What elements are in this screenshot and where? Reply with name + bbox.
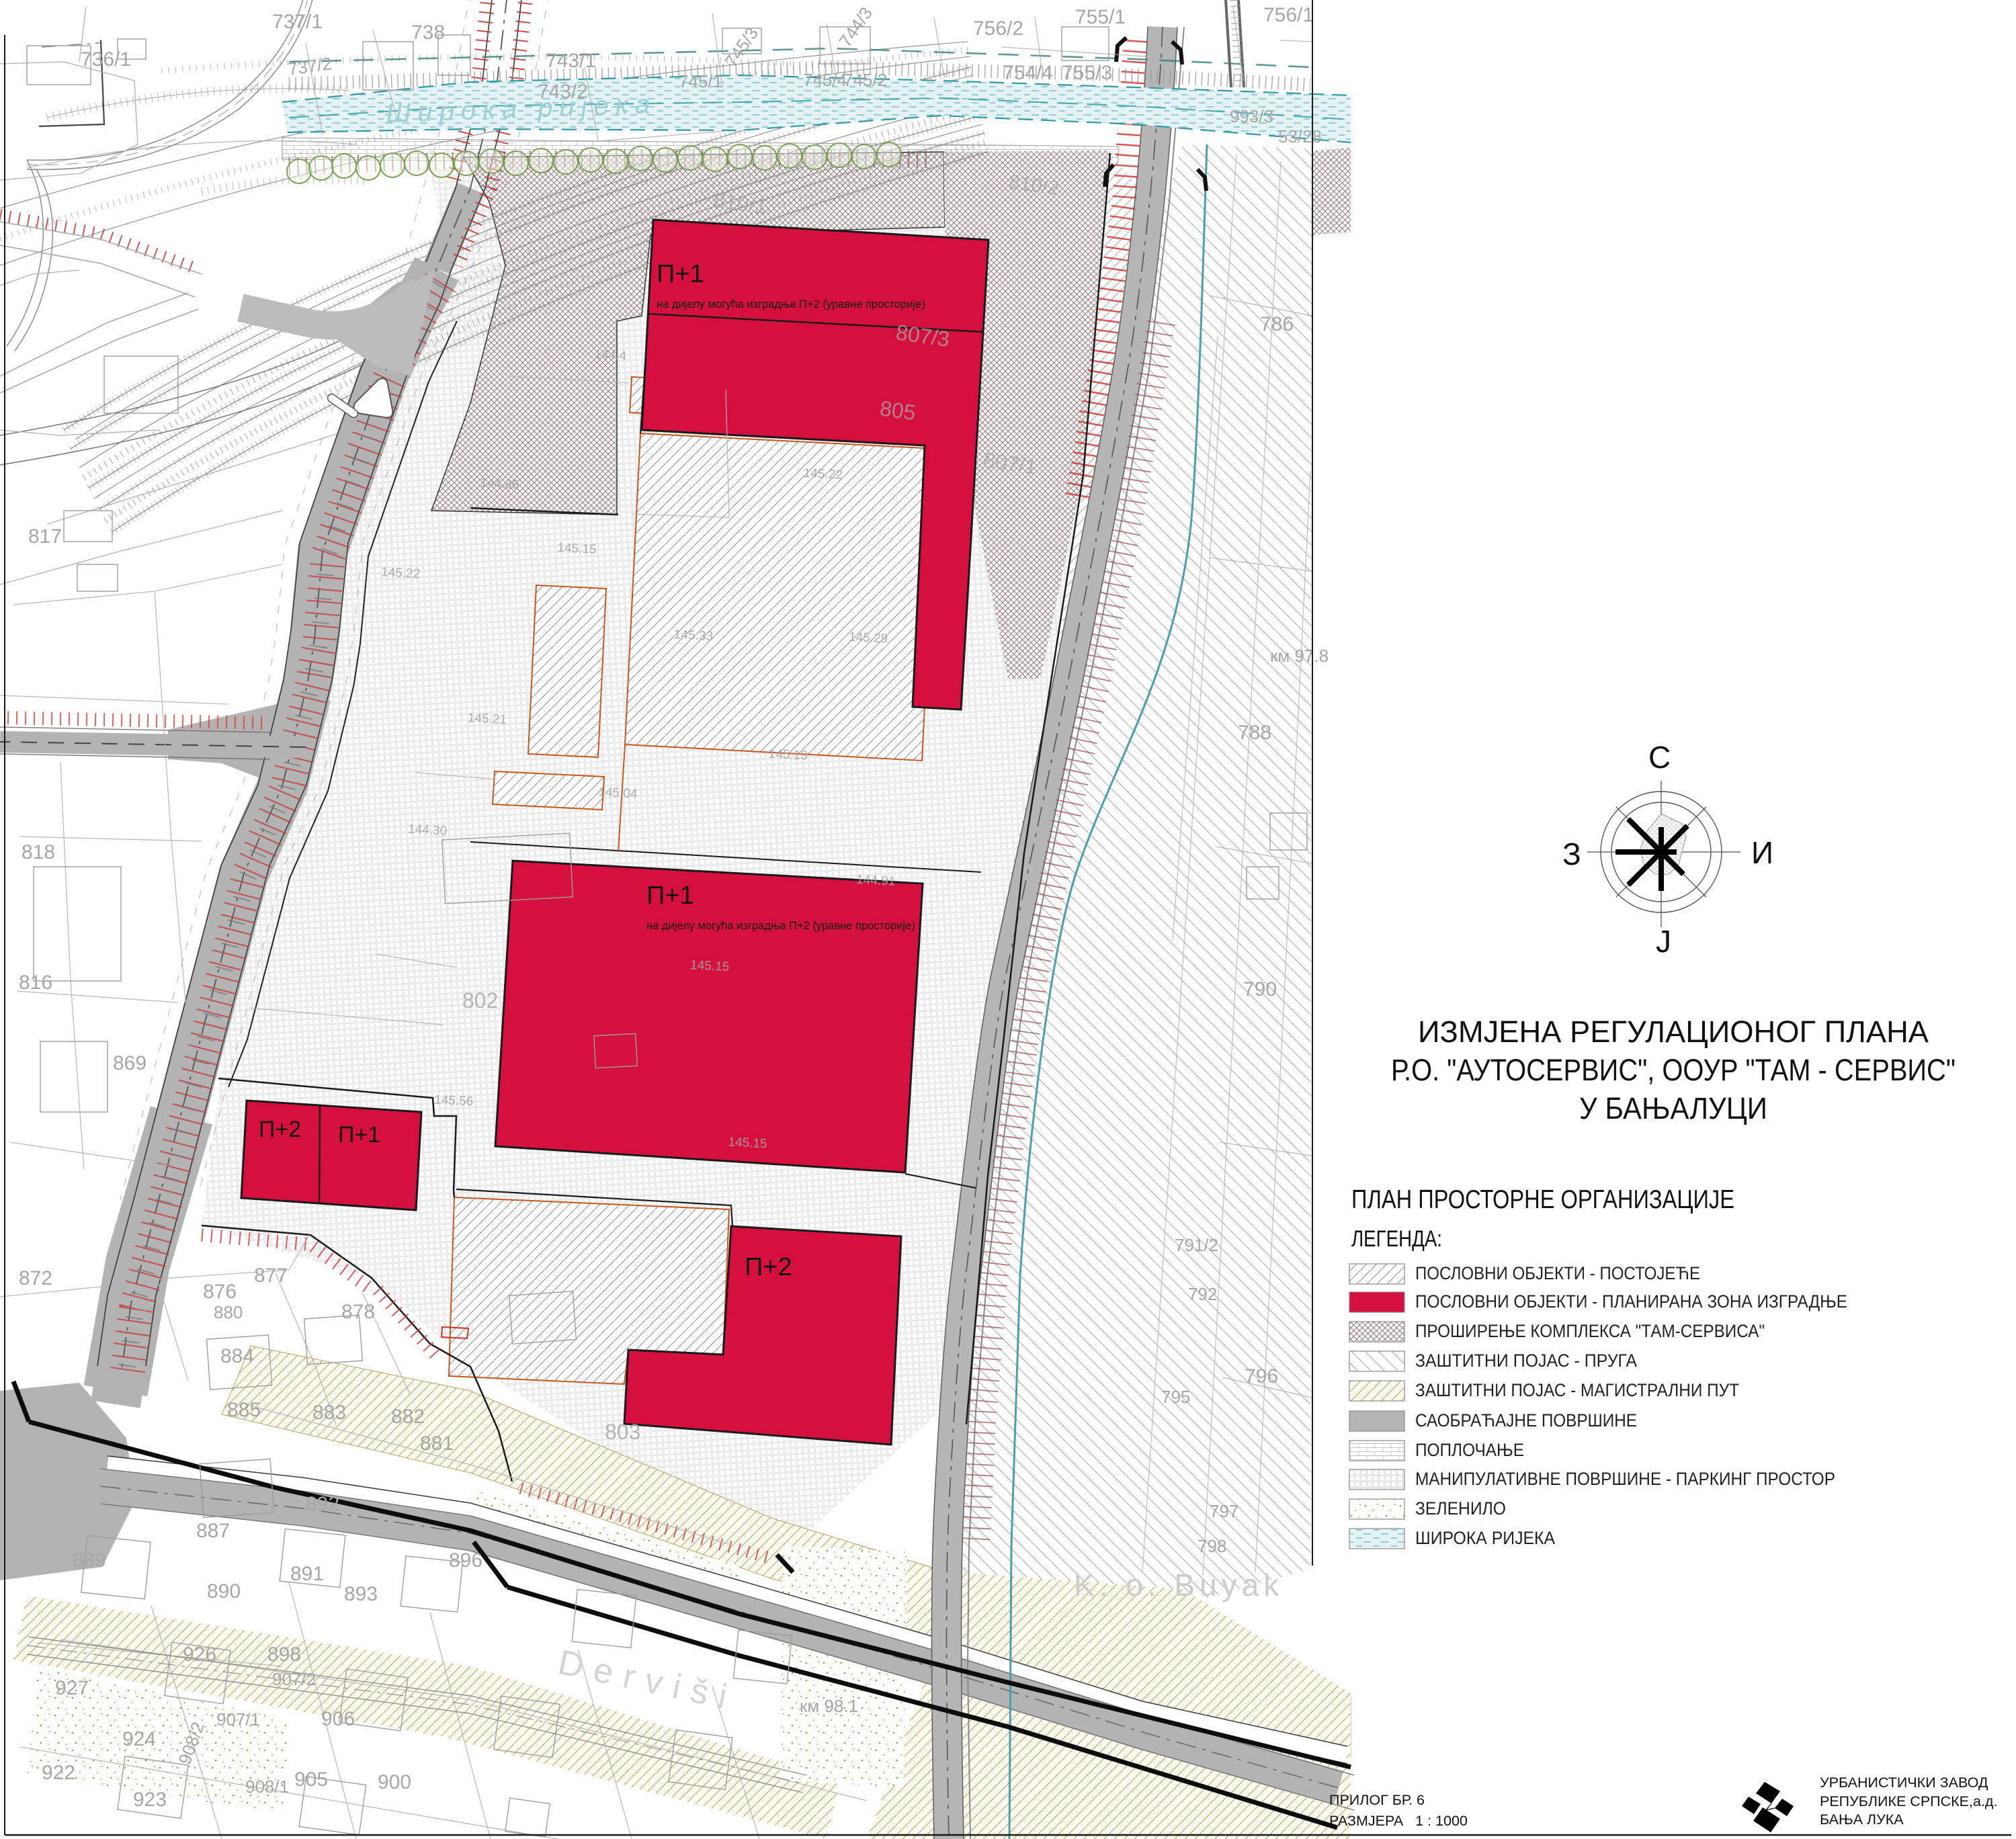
svg-text:РЕПУБЛИКЕ СРПСКЕ,а.д.: РЕПУБЛИКЕ СРПСКЕ,а.д. [1820,1793,1997,1809]
svg-text:145.15: 145.15 [728,1135,767,1151]
svg-text:797: 797 [1210,1501,1238,1521]
svg-text:53/28: 53/28 [1278,126,1322,146]
svg-text:736/1: 736/1 [81,48,131,71]
svg-text:738: 738 [411,22,445,44]
svg-text:795: 795 [1161,1387,1190,1407]
svg-text:754/4: 754/4 [1003,62,1053,84]
svg-text:893: 893 [344,1583,378,1605]
svg-text:ПОПЛОЧАЊЕ: ПОПЛОЧАЊЕ [1415,1440,1524,1460]
svg-text:П+2: П+2 [259,1117,301,1142]
svg-text:145.56: 145.56 [434,1093,474,1109]
svg-text:884: 884 [220,1345,254,1367]
svg-text:П+2: П+2 [745,1253,792,1281]
svg-text:887: 887 [196,1520,230,1542]
svg-text:УРБАНИСТИЧКИ ЗАВОД: УРБАНИСТИЧКИ ЗАВОД [1820,1774,1988,1791]
svg-text:ЗАШТИТНИ ПОЈАС - МАГИСТРАЛНИ П: ЗАШТИТНИ ПОЈАС - МАГИСТРАЛНИ ПУТ [1415,1380,1739,1400]
svg-text:У БАЊАЛУЦИ: У БАЊАЛУЦИ [1579,1091,1767,1125]
svg-text:J: J [1656,924,1671,959]
svg-text:878: 878 [341,1301,375,1323]
svg-text:877: 877 [254,1265,288,1287]
svg-text:ЗЕЛЕНИЛО: ЗЕЛЕНИЛО [1415,1498,1506,1519]
svg-text:ПОСЛОВНИ ОБЈЕКТИ - ПЛАНИРАНА З: ПОСЛОВНИ ОБЈЕКТИ - ПЛАНИРАНА ЗОНА ИЗГРАД… [1415,1291,1847,1312]
svg-text:144.66: 144.66 [480,476,519,493]
svg-text:743/1: 743/1 [546,50,596,72]
svg-text:805: 805 [878,396,917,425]
svg-text:Р.О. "АУТОСЕРВИС", ООУР "ТАМ -: Р.О. "АУТОСЕРВИС", ООУР "ТАМ - СЕРВИС" [1391,1053,1956,1087]
svg-text:756/1: 756/1 [1263,4,1314,26]
svg-text:869: 869 [113,1052,146,1074]
svg-text:И: И [1751,835,1773,870]
svg-text:ЛЕГЕНДА:: ЛЕГЕНДА: [1351,1226,1442,1252]
svg-text:145.22: 145.22 [803,466,843,482]
svg-text:745/2: 745/2 [843,70,887,90]
svg-text:БАЊА ЛУКА: БАЊА ЛУКА [1820,1811,1904,1828]
svg-text:872: 872 [19,1267,52,1289]
svg-text:881: 881 [420,1432,454,1455]
svg-text:889: 889 [73,1549,106,1572]
svg-text:737/1: 737/1 [272,11,323,33]
svg-text:ПОСЛОВНИ ОБЈЕКТИ - ПОСТОЈЕЋЕ: ПОСЛОВНИ ОБЈЕКТИ - ПОСТОЈЕЋЕ [1415,1263,1700,1283]
svg-text:П+1: П+1 [338,1122,380,1148]
svg-text:ШИРОКА РИЈЕКА: ШИРОКА РИЈЕКА [1415,1528,1555,1548]
svg-text:876: 876 [203,1281,237,1303]
svg-text:км 98.1: км 98.1 [800,1696,858,1716]
svg-text:С: С [1648,740,1671,775]
svg-text:на дијелу могућа изградња П+2: на дијелу могућа изградња П+2 (уравне пр… [646,920,915,932]
svg-text:САОБРАЋАЈНЕ ПОВРШИНЕ: САОБРАЋАЈНЕ ПОВРШИНЕ [1415,1410,1637,1430]
svg-text:882: 882 [391,1406,425,1428]
svg-text:907/2: 907/2 [272,1669,316,1689]
svg-text:816: 816 [19,972,52,994]
svg-text:745/1: 745/1 [679,71,722,91]
svg-text:818: 818 [22,841,55,863]
svg-text:892: 892 [306,1493,339,1515]
svg-text:792: 792 [1188,1284,1217,1304]
svg-text:ЗАШТИТНИ ПОЈАС - ПРУГА: ЗАШТИТНИ ПОЈАС - ПРУГА [1415,1351,1637,1371]
svg-text:на дијелу могућа изградња П+2: на дијелу могућа изградња П+2 (уравне пр… [657,298,925,310]
svg-text:145.21: 145.21 [467,711,507,727]
svg-text:923: 923 [133,1789,167,1811]
svg-text:798: 798 [1198,1536,1226,1556]
svg-text:891: 891 [290,1563,324,1585]
svg-text:924: 924 [122,1728,156,1750]
svg-text:РАЗМЈЕРА 1 : 1000: РАЗМЈЕРА 1 : 1000 [1329,1813,1468,1829]
svg-text:ПРИЛОГ БР. 6: ПРИЛОГ БР. 6 [1329,1792,1425,1808]
svg-text:796: 796 [1245,1365,1278,1387]
svg-text:З: З [1562,837,1581,871]
svg-text:км 97.8: км 97.8 [1270,646,1329,666]
svg-text:898: 898 [267,1643,301,1666]
svg-text:145.04: 145.04 [598,785,638,802]
svg-text:145.33: 145.33 [673,628,713,644]
svg-text:145.15: 145.15 [690,958,730,974]
svg-text:803: 803 [605,1420,640,1444]
svg-text:802: 802 [462,988,498,1013]
svg-text:144.4: 144.4 [594,347,627,363]
svg-text:883: 883 [312,1402,346,1424]
svg-text:П+1: П+1 [657,260,704,288]
svg-text:П+1: П+1 [646,882,694,910]
svg-text:786: 786 [1260,313,1294,335]
svg-text:926: 926 [183,1643,216,1666]
svg-text:817: 817 [28,525,62,548]
svg-text:145.13: 145.13 [768,747,808,763]
svg-text:МАНИПУЛАТИВНЕ ПОВРШИНЕ - ПАРКИ: МАНИПУЛАТИВНЕ ПОВРШИНЕ - ПАРКИНГ ПРОСТОР [1415,1469,1835,1489]
svg-text:907/1: 907/1 [216,1709,260,1729]
svg-text:144.91: 144.91 [856,873,896,889]
svg-text:145.29: 145.29 [849,630,888,646]
svg-text:ПЛАН ПРОСТОРНЕ ОРГАНИЗАЦИЈЕ: ПЛАН ПРОСТОРНЕ ОРГАНИЗАЦИЈЕ [1351,1185,1734,1214]
svg-text:K. o. Buyak: K. o. Buyak [1074,1568,1284,1602]
svg-text:788: 788 [1238,722,1271,744]
svg-text:745/4: 745/4 [803,70,847,90]
svg-text:927: 927 [55,1677,89,1699]
svg-text:908/1: 908/1 [245,1777,289,1797]
svg-text:890: 890 [207,1580,241,1602]
svg-text:145.15: 145.15 [557,541,597,557]
svg-text:144.30: 144.30 [408,822,448,839]
svg-text:755/1: 755/1 [1075,6,1126,28]
svg-text:993/3: 993/3 [1230,106,1273,126]
svg-text:905: 905 [294,1768,328,1791]
svg-text:885: 885 [227,1399,261,1421]
svg-text:755/3: 755/3 [1062,62,1112,84]
svg-text:896: 896 [449,1549,482,1572]
svg-text:922: 922 [42,1762,75,1784]
svg-text:790: 790 [1243,978,1277,1000]
svg-text:900: 900 [378,1771,411,1793]
svg-text:ПРОШИРЕЊЕ КОМПЛЕКСА "ТАМ-СЕРВИ: ПРОШИРЕЊЕ КОМПЛЕКСА "ТАМ-СЕРВИСА" [1415,1321,1765,1341]
svg-text:791/2: 791/2 [1175,1235,1218,1255]
svg-text:145.22: 145.22 [381,565,421,581]
svg-text:756/2: 756/2 [973,17,1023,40]
svg-text:880: 880 [214,1302,243,1322]
svg-text:906: 906 [321,1708,355,1730]
svg-text:ИЗМЈЕНА РЕГУЛАЦИОНОГ ПЛАНА: ИЗМЈЕНА РЕГУЛАЦИОНОГ ПЛАНА [1418,1015,1929,1049]
